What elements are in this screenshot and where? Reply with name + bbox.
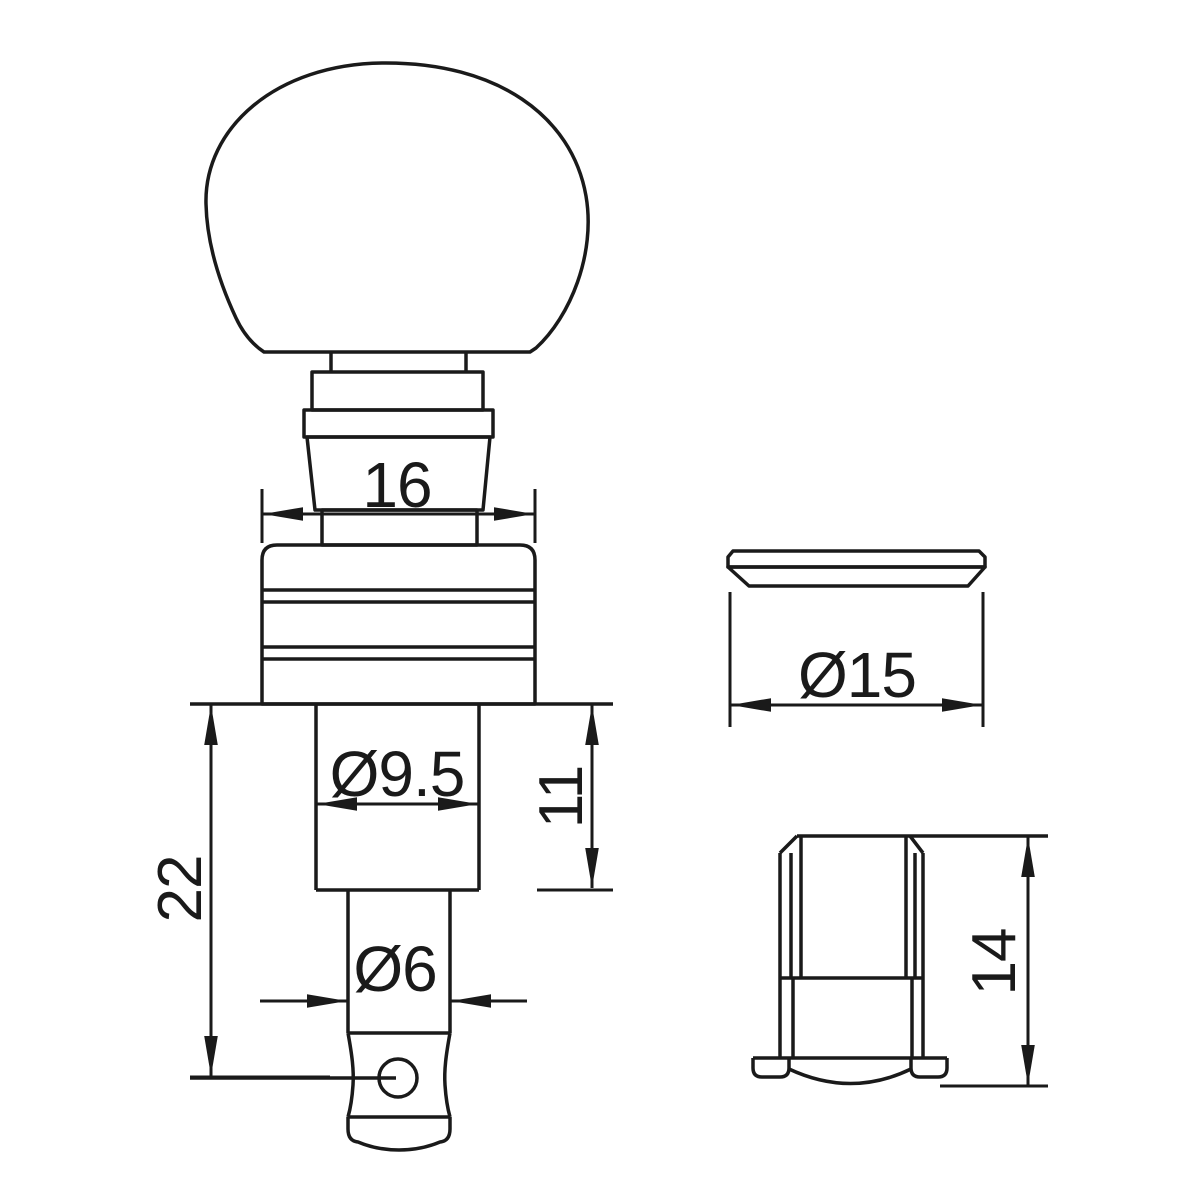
knob-outline <box>206 63 588 352</box>
dim11-label: 11 <box>527 766 596 828</box>
bushing-chamfer-right <box>910 836 923 853</box>
bushing-flange-tab-left <box>753 1058 789 1077</box>
tuning-peg-technical-drawing: 16 Ø9.5 11 22 Ø6 Ø15 <box>0 0 1200 1200</box>
collar-upper <box>312 372 483 410</box>
dimension-16: 16 <box>262 449 535 543</box>
washer-bevel <box>728 567 985 586</box>
collar-lower <box>304 410 493 437</box>
drawing-canvas: 16 Ø9.5 11 22 Ø6 Ø15 <box>0 0 1200 1200</box>
dim95-label: Ø9.5 <box>330 738 465 810</box>
bushing-chamfer-left <box>780 836 797 853</box>
dimension-14: 14 <box>940 837 1048 1086</box>
knob-stem <box>331 353 466 372</box>
dimension-11: 11 <box>527 705 613 890</box>
string-post-tip <box>190 1033 450 1150</box>
washer-side-view <box>728 551 985 586</box>
bushing-flange-tab-right <box>911 1058 947 1077</box>
gear-housing <box>262 545 535 704</box>
dim22-label: 22 <box>146 856 215 923</box>
washer-top-strip <box>728 551 985 567</box>
dimension-6: Ø6 <box>260 933 527 1005</box>
bushing-bottom-dome <box>789 1069 911 1084</box>
dim15-label: Ø15 <box>798 639 916 711</box>
tip-left-concave-edge <box>348 1033 353 1117</box>
dimension-9-5: Ø9.5 <box>317 738 478 810</box>
dimension-22: 22 <box>146 705 330 1077</box>
dim14-label: 14 <box>960 929 1029 996</box>
dimension-15: Ø15 <box>730 592 983 727</box>
tip-right-concave-edge <box>445 1033 450 1117</box>
dim6-label: Ø6 <box>353 933 436 1005</box>
tip-bottom-dome <box>348 1117 450 1150</box>
dim16-label: 16 <box>362 449 431 521</box>
